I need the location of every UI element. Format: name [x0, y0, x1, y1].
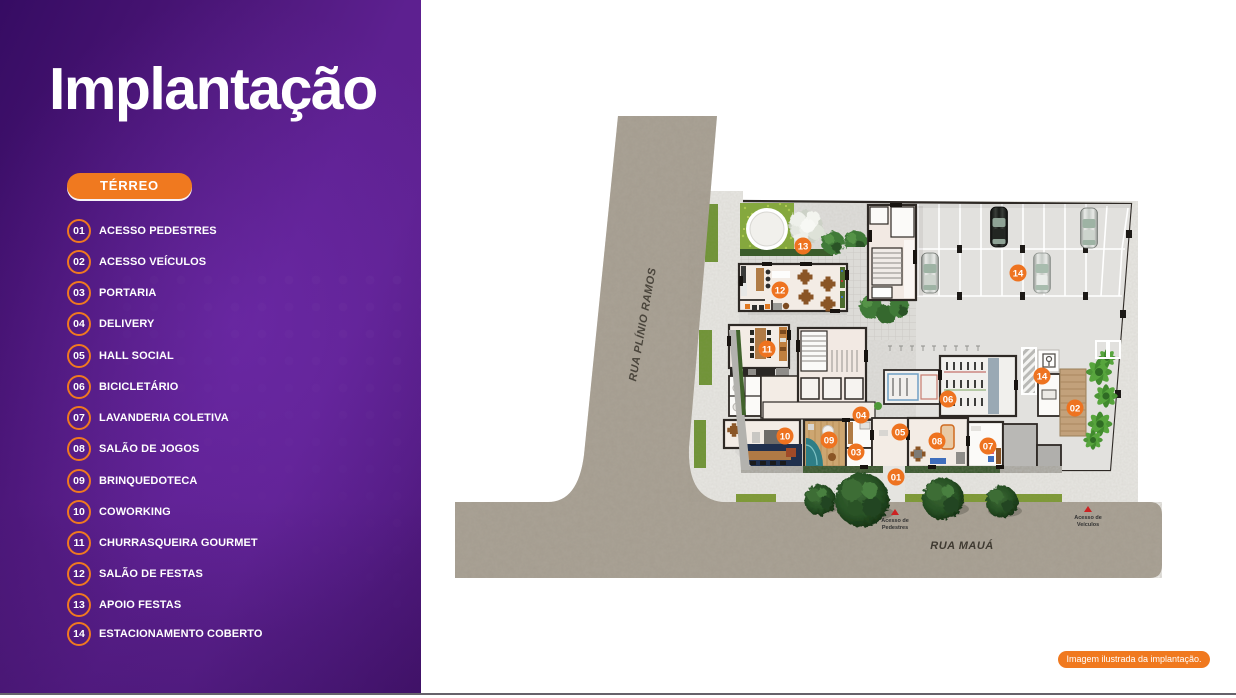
svg-text:12: 12 — [775, 286, 786, 297]
svg-text:Pedestres: Pedestres — [882, 525, 908, 531]
svg-text:Acesso de: Acesso de — [881, 518, 909, 524]
svg-text:06: 06 — [943, 395, 954, 406]
svg-text:04: 04 — [856, 411, 867, 422]
svg-text:RUA MAUÁ: RUA MAUÁ — [930, 539, 993, 552]
svg-text:14: 14 — [1037, 372, 1048, 383]
svg-text:08: 08 — [932, 437, 943, 448]
svg-text:02: 02 — [1070, 404, 1081, 415]
svg-text:03: 03 — [851, 448, 862, 459]
svg-text:09: 09 — [824, 436, 835, 447]
svg-text:13: 13 — [798, 242, 809, 253]
svg-text:Veículos: Veículos — [1077, 522, 1099, 528]
svg-text:11: 11 — [762, 345, 773, 356]
svg-text:14: 14 — [1013, 269, 1024, 280]
svg-text:Acesso de: Acesso de — [1074, 515, 1102, 521]
svg-text:07: 07 — [983, 442, 994, 453]
svg-text:05: 05 — [895, 428, 906, 439]
svg-text:01: 01 — [891, 473, 902, 484]
svg-text:10: 10 — [780, 432, 791, 443]
